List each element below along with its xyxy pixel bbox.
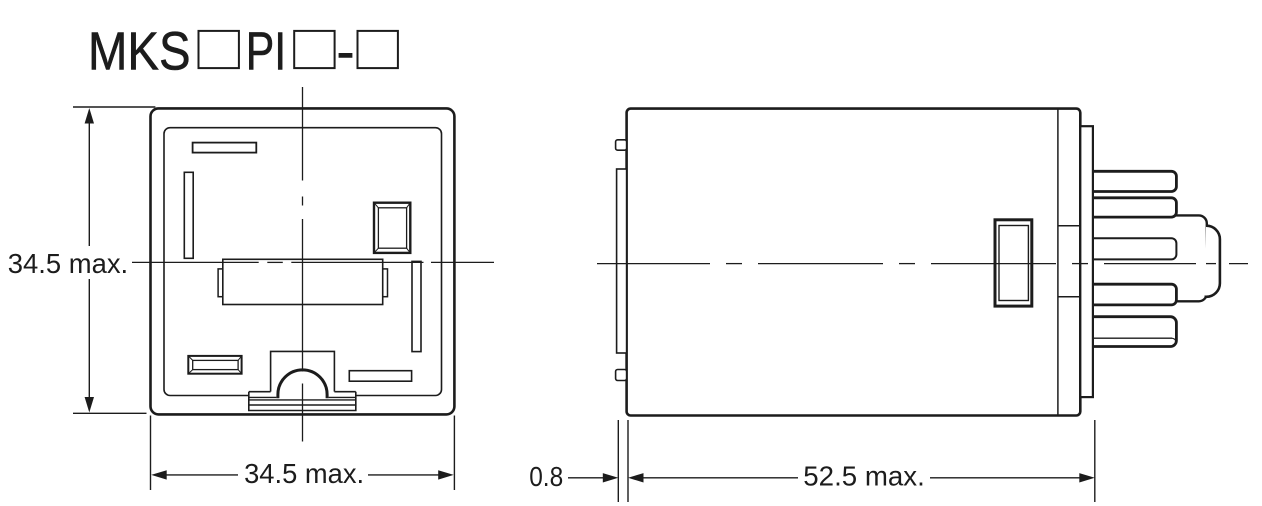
svg-text:0.8: 0.8 — [529, 461, 563, 492]
svg-text:-: - — [337, 22, 355, 82]
svg-text:52.5 max.: 52.5 max. — [803, 461, 925, 492]
svg-text:34.5 max.: 34.5 max. — [8, 248, 129, 279]
svg-text:PI: PI — [246, 22, 286, 82]
svg-text:34.5 max.: 34.5 max. — [244, 458, 364, 489]
svg-text:MKS: MKS — [88, 22, 191, 82]
